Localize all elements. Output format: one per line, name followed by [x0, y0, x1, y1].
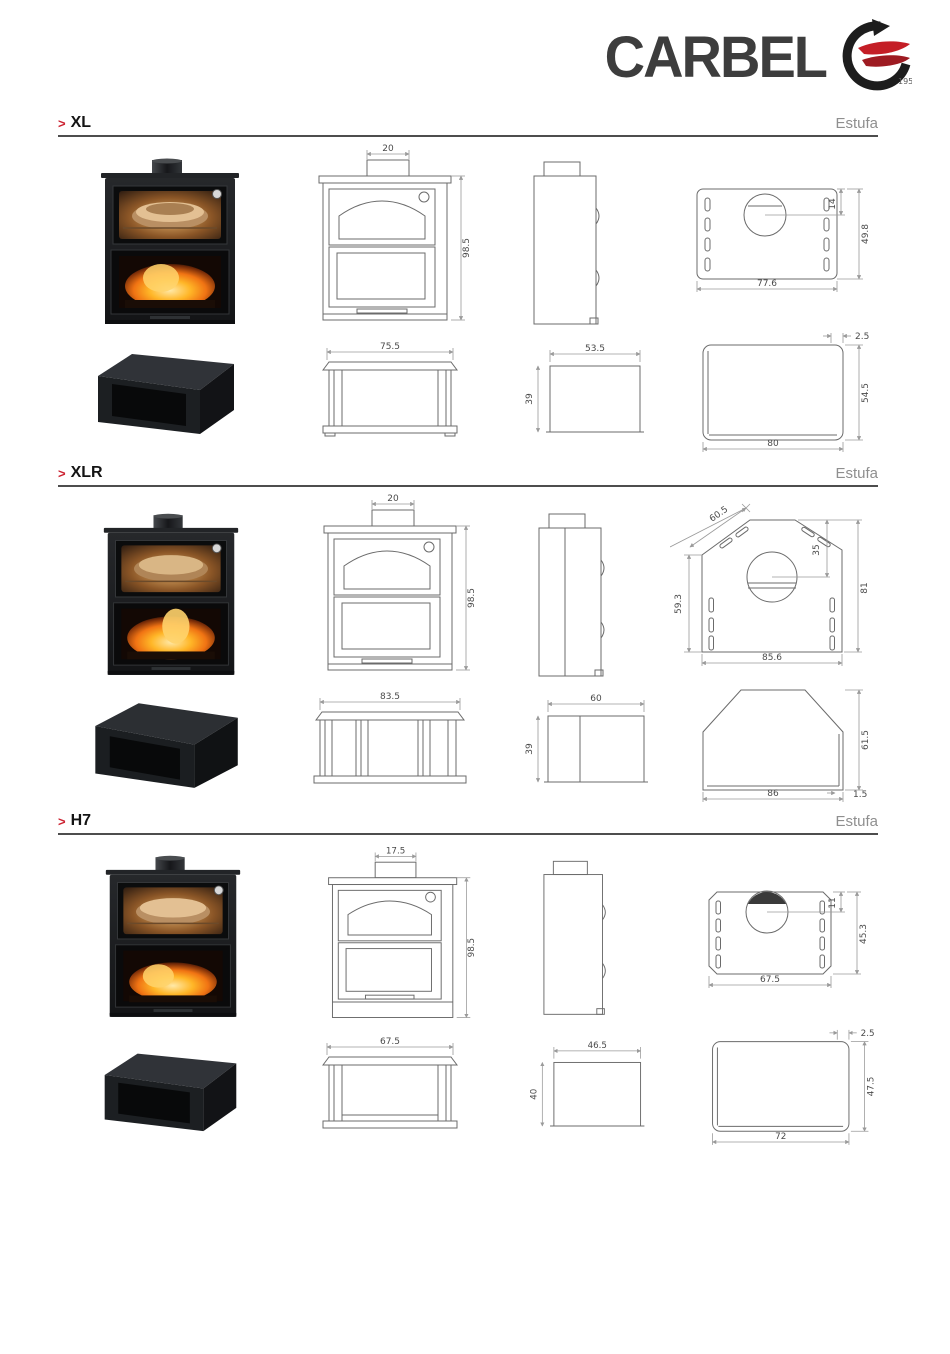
xlr-side-drawing — [525, 502, 640, 682]
dim-base-width-label: 75.5 — [380, 342, 400, 352]
h7-stove-photo — [100, 855, 246, 1021]
catalog-page: CARBEL 1957 > XL Estufa 20 98.5 — [0, 0, 950, 1354]
dim-base-width-label: 67.5 — [380, 1037, 400, 1047]
dim-base-side-width-label: 60 — [590, 694, 602, 704]
dim-base-top-width-label: 72 — [775, 1132, 786, 1142]
section-bullet-icon: > — [58, 466, 66, 481]
thermometer-dial — [214, 886, 223, 895]
dim-pipe-label: 20 — [382, 144, 394, 154]
xlr-topview-drawing: 60.5 59.3 35 81 85.6 — [670, 500, 875, 670]
thermometer-icon — [419, 192, 429, 202]
firebox-window — [337, 253, 425, 299]
xlr-base-side-drawing: 60 39 — [520, 692, 655, 792]
dim-base-side-height-label: 40 — [530, 1089, 540, 1100]
oven-window — [344, 551, 430, 589]
section-name-label: XL — [71, 114, 91, 132]
xl-base-side-drawing: 53.5 39 — [520, 342, 655, 442]
section-header-xlr: > XLR Estufa — [58, 456, 878, 487]
dim-depth-label: 45.3 — [859, 924, 869, 944]
dim-height-label: 98.5 — [462, 238, 472, 258]
oven-window — [339, 201, 425, 239]
thermometer-dial — [213, 190, 222, 199]
section-header-xl: > XL Estufa — [58, 106, 878, 137]
dim-width-label: 77.6 — [757, 279, 777, 289]
h7-front-drawing: 17.5 98.5 — [315, 842, 480, 1028]
xl-side-drawing — [520, 150, 635, 330]
h7-base-front-drawing: 67.5 — [305, 1035, 475, 1135]
dim-base-top-edge-label: 1.5 — [853, 790, 867, 800]
xl-base-top-drawing: 2.5 54.5 80 — [685, 325, 880, 453]
section-title: > XL — [58, 114, 91, 132]
dim-base-side-height-label: 39 — [525, 743, 535, 755]
firebox-window — [342, 603, 430, 649]
dim-side-depth-label: 59.3 — [674, 594, 684, 614]
dim-width-label: 67.5 — [760, 975, 780, 985]
dim-flue-offset-label: 11 — [828, 897, 838, 908]
dim-base-side-width-label: 46.5 — [588, 1041, 607, 1051]
section-bullet-icon: > — [58, 116, 66, 131]
dim-base-top-depth-label: 61.5 — [861, 730, 871, 750]
product-type-label: Estufa — [835, 115, 878, 132]
section-title: > XLR — [58, 464, 103, 482]
dim-total-depth-label: 81 — [860, 582, 870, 593]
section-header-h7: > H7 Estufa — [58, 804, 878, 835]
xl-base-front-drawing: 75.5 — [305, 340, 475, 440]
brand-year: 1957 — [898, 77, 912, 86]
dim-base-top-width-label: 86 — [767, 789, 779, 799]
xlr-base-photo — [85, 690, 245, 795]
thermometer-icon — [424, 542, 434, 552]
h7-base-photo — [95, 1040, 245, 1137]
dim-base-side-width-label: 53.5 — [585, 344, 605, 354]
dim-pipe-label: 20 — [387, 494, 399, 504]
xlr-base-top-drawing: 61.5 1.5 86 — [685, 672, 885, 804]
section-bullet-icon: > — [58, 814, 66, 829]
xlr-base-front-drawing: 83.5 — [300, 690, 480, 790]
dim-width-label: 85.6 — [762, 653, 782, 663]
brand-logo: CARBEL 1957 — [605, 18, 912, 96]
dim-pipe-label: 17.5 — [386, 846, 405, 856]
brand-flame-icon: 1957 — [820, 18, 912, 96]
xl-front-drawing: 20 98.5 — [305, 142, 475, 328]
dim-base-width-label: 83.5 — [380, 692, 400, 702]
dim-base-side-height-label: 39 — [525, 393, 535, 405]
h7-base-side-drawing: 46.5 40 — [525, 1035, 655, 1140]
dim-base-top-width-label: 80 — [767, 439, 779, 449]
section-name-label: XLR — [71, 464, 103, 482]
xlr-stove-photo — [98, 508, 244, 684]
flue-dark-segment — [748, 892, 786, 904]
xl-topview-drawing: 14 49.8 77.6 — [685, 162, 875, 294]
firebox-window — [346, 949, 431, 992]
section-title: > H7 — [58, 812, 91, 830]
h7-side-drawing — [530, 850, 640, 1020]
dim-flue-offset-label: 35 — [812, 544, 822, 555]
dim-base-top-depth-label: 54.5 — [861, 383, 871, 403]
dim-base-top-edge-label: 2.5 — [855, 332, 869, 342]
xlr-front-drawing: 20 98.5 — [310, 492, 480, 678]
h7-topview-drawing: 11 45.3 67.5 — [695, 868, 870, 990]
dim-flue-offset-label: 14 — [828, 198, 838, 210]
product-type-label: Estufa — [835, 465, 878, 482]
dim-base-top-depth-label: 47.5 — [866, 1077, 876, 1096]
fire-flames — [129, 962, 217, 1001]
thermometer-icon — [426, 892, 436, 902]
xl-base-photo — [88, 340, 243, 440]
brand-name: CARBEL — [605, 28, 826, 87]
section-name-label: H7 — [71, 812, 91, 830]
xl-stove-photo — [95, 158, 245, 328]
oven-window — [348, 901, 431, 935]
thermometer-dial — [212, 544, 221, 553]
h7-base-top-drawing: 2.5 47.5 72 — [695, 1022, 885, 1147]
dim-height-label: 98.5 — [467, 938, 477, 957]
product-type-label: Estufa — [835, 813, 878, 830]
dim-height-label: 98.5 — [467, 588, 477, 608]
dim-base-top-edge-label: 2.5 — [861, 1029, 875, 1039]
dim-depth-label: 49.8 — [861, 224, 871, 244]
